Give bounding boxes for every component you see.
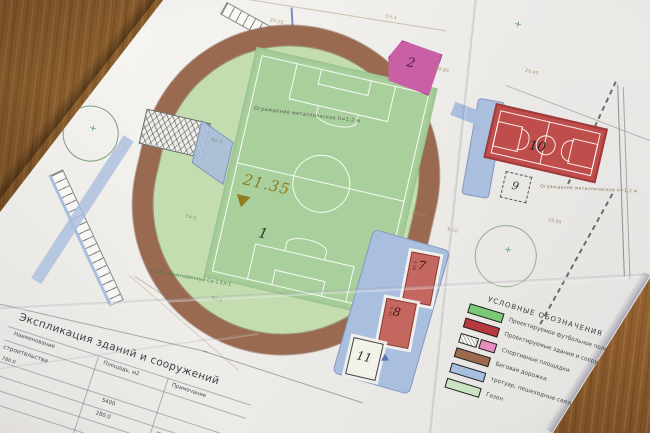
object-number-9: 9 bbox=[510, 179, 520, 193]
legend-swatch-sports-hatched bbox=[458, 333, 479, 348]
legend-label: Газон bbox=[485, 392, 504, 403]
legend-swatch-sports-pink bbox=[478, 339, 497, 354]
tree-cross-icon: + bbox=[503, 245, 513, 256]
spot-elevation: 20.45 bbox=[524, 69, 539, 77]
fence-annotation-court: Ограждение металлическое h=1,2 м bbox=[540, 185, 650, 196]
tree-cross-icon: + bbox=[88, 124, 98, 135]
survey-cross-icon: + bbox=[513, 19, 523, 30]
spot-elevation: 19.95 bbox=[547, 218, 562, 226]
platform-9: 9 bbox=[500, 171, 532, 203]
basketball-court-10: 10 bbox=[483, 103, 608, 183]
object-number-10: 10 bbox=[528, 138, 547, 155]
spot-elevation: 20.15 bbox=[269, 18, 284, 26]
object-number-2: 2 bbox=[405, 55, 416, 71]
spot-elevation: 19.80 bbox=[434, 66, 449, 74]
object-number-11: 11 bbox=[355, 348, 373, 365]
photo-of-site-plan: 21.35 1 Ограждение металлическое h=1,2 м… bbox=[0, 0, 650, 433]
object-number-7: 7 bbox=[417, 258, 427, 273]
site-boundary-dashed-line bbox=[539, 193, 613, 325]
